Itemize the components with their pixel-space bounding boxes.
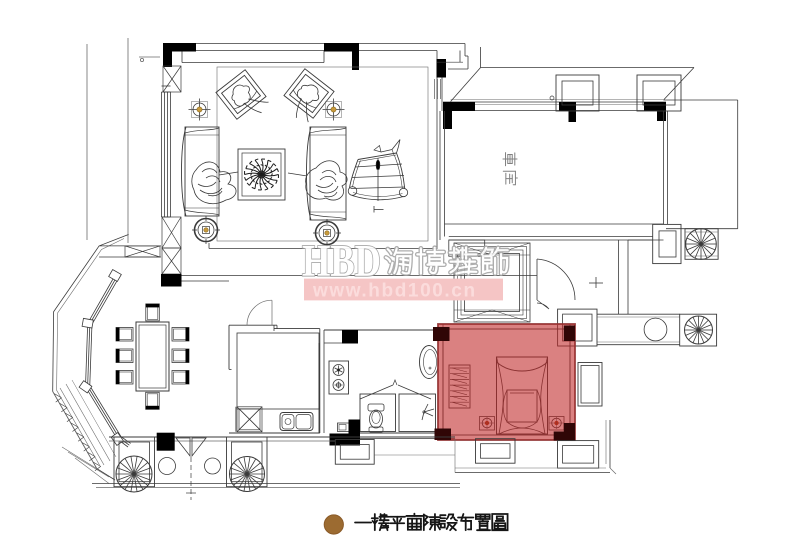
svg-text:HBD: HBD xyxy=(302,236,381,286)
